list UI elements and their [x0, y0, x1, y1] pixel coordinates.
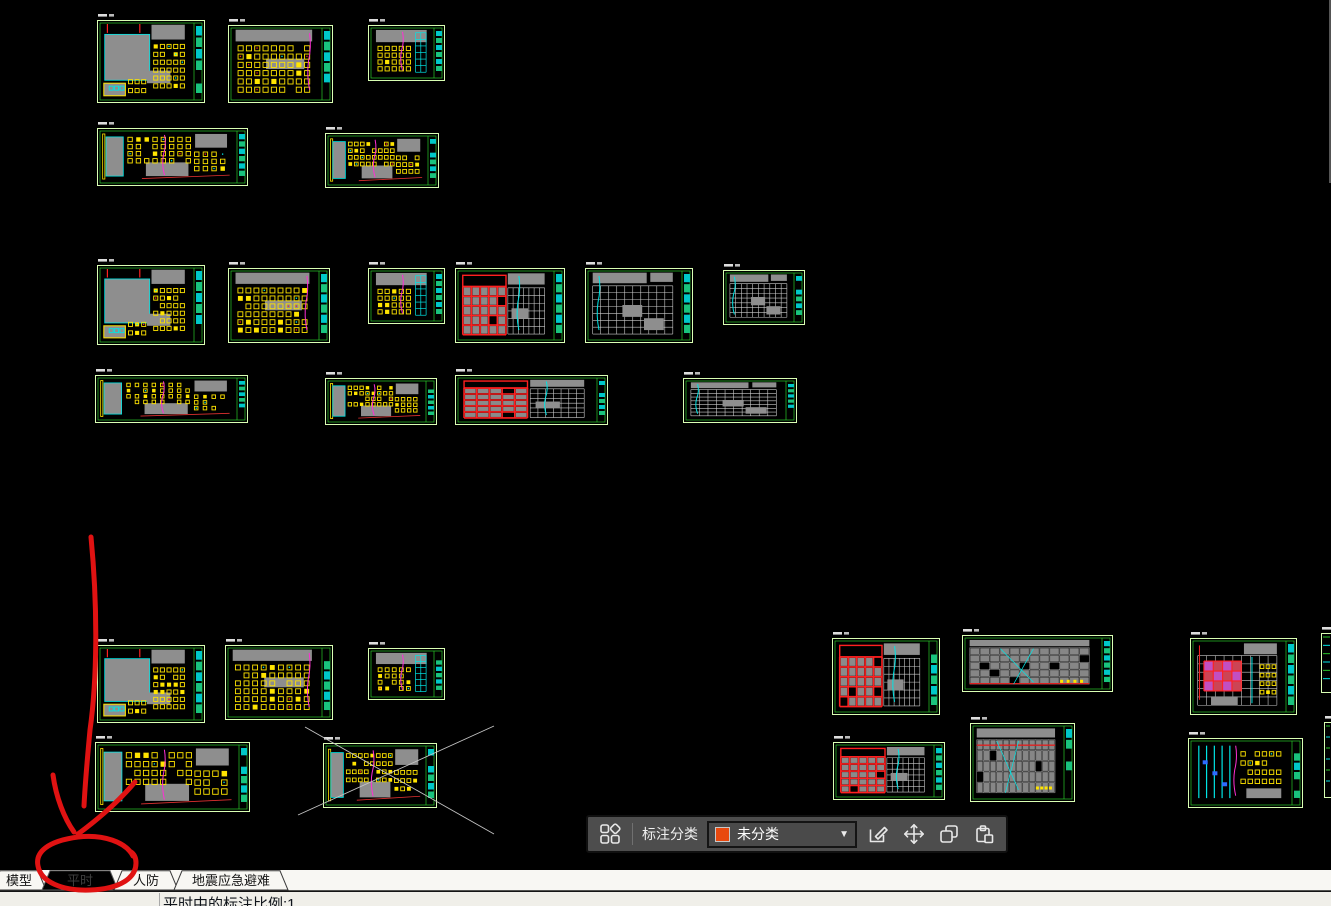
drawing-thumbnail[interactable] — [228, 262, 336, 344]
tab-model[interactable]: 模型 — [0, 871, 46, 890]
tab-renfang[interactable]: 人防 — [114, 871, 178, 890]
drawing-thumbnail[interactable] — [325, 372, 443, 426]
drawing-thumbnail[interactable] — [95, 369, 254, 424]
tab-pingshi-label: 平时 — [67, 873, 93, 888]
category-dropdown-value: 未分类 — [737, 824, 839, 844]
tab-model-label: 模型 — [6, 873, 32, 888]
drawing-thumbnail[interactable] — [97, 639, 211, 724]
annotation-category-label: 标注分类 — [642, 824, 698, 844]
model-canvas[interactable] — [0, 0, 1331, 906]
dropdown-caret-icon: ▼ — [839, 829, 849, 840]
drawing-thumbnail[interactable] — [97, 259, 211, 346]
category-dropdown[interactable]: 未分类 ▼ — [707, 821, 857, 848]
cad-window: 标注分类 未分类 ▼ — [0, 0, 1331, 906]
drawing-thumbnail[interactable] — [455, 369, 614, 426]
drawing-thumbnail[interactable] — [368, 642, 451, 701]
drawing-thumbnail[interactable] — [585, 262, 699, 344]
drawing-thumbnail[interactable] — [1188, 732, 1309, 809]
drawing-thumbnail[interactable] — [228, 19, 339, 104]
drawing-thumbnail[interactable] — [962, 629, 1119, 693]
move-annotation-icon[interactable] — [901, 821, 927, 847]
drawing-thumbnail[interactable] — [225, 639, 339, 721]
layout-tab-bar: 模型平时人防地震应急避难平时中的标注比例:1 — [0, 870, 1331, 906]
drawing-thumbnail[interactable] — [325, 127, 445, 189]
drawing-thumbnail[interactable] — [1324, 716, 1331, 799]
tab-dizhen-yingji-binan[interactable]: 地震应急避难 — [174, 871, 288, 890]
drawing-thumbnail[interactable] — [323, 737, 443, 809]
category-color-swatch — [715, 827, 730, 842]
drawing-thumbnail[interactable] — [455, 262, 571, 344]
tab-dizhen-yingji-binan-label: 地震应急避难 — [192, 873, 270, 888]
drawing-thumbnail[interactable] — [97, 122, 254, 187]
edit-annotation-icon[interactable] — [866, 821, 892, 847]
drawing-thumbnail[interactable] — [970, 717, 1081, 803]
annotation-toolbar: 标注分类 未分类 ▼ — [586, 815, 1008, 853]
statusbar-scale-text: 平时中的标注比例:1 — [163, 896, 296, 906]
toolbar-separator — [632, 823, 633, 845]
tab-renfang-label: 人防 — [133, 873, 159, 888]
drawing-thumbnail[interactable] — [1321, 627, 1331, 694]
drawing-thumbnail[interactable] — [368, 262, 451, 325]
drawing-thumbnail[interactable] — [97, 14, 211, 104]
drawing-thumbnail[interactable] — [833, 736, 951, 801]
drawing-thumbnail[interactable] — [723, 264, 811, 326]
drawing-thumbnail[interactable] — [832, 632, 946, 716]
categories-icon[interactable] — [597, 821, 623, 847]
drawing-thumbnail[interactable] — [683, 372, 803, 424]
drawing-thumbnail[interactable] — [95, 736, 256, 813]
drawing-thumbnail[interactable] — [368, 19, 451, 82]
copy-annotation-icon[interactable] — [936, 821, 962, 847]
drawing-thumbnail[interactable] — [1190, 632, 1303, 716]
paste-annotation-icon[interactable] — [971, 821, 997, 847]
tab-pingshi[interactable]: 平时 — [42, 871, 118, 890]
